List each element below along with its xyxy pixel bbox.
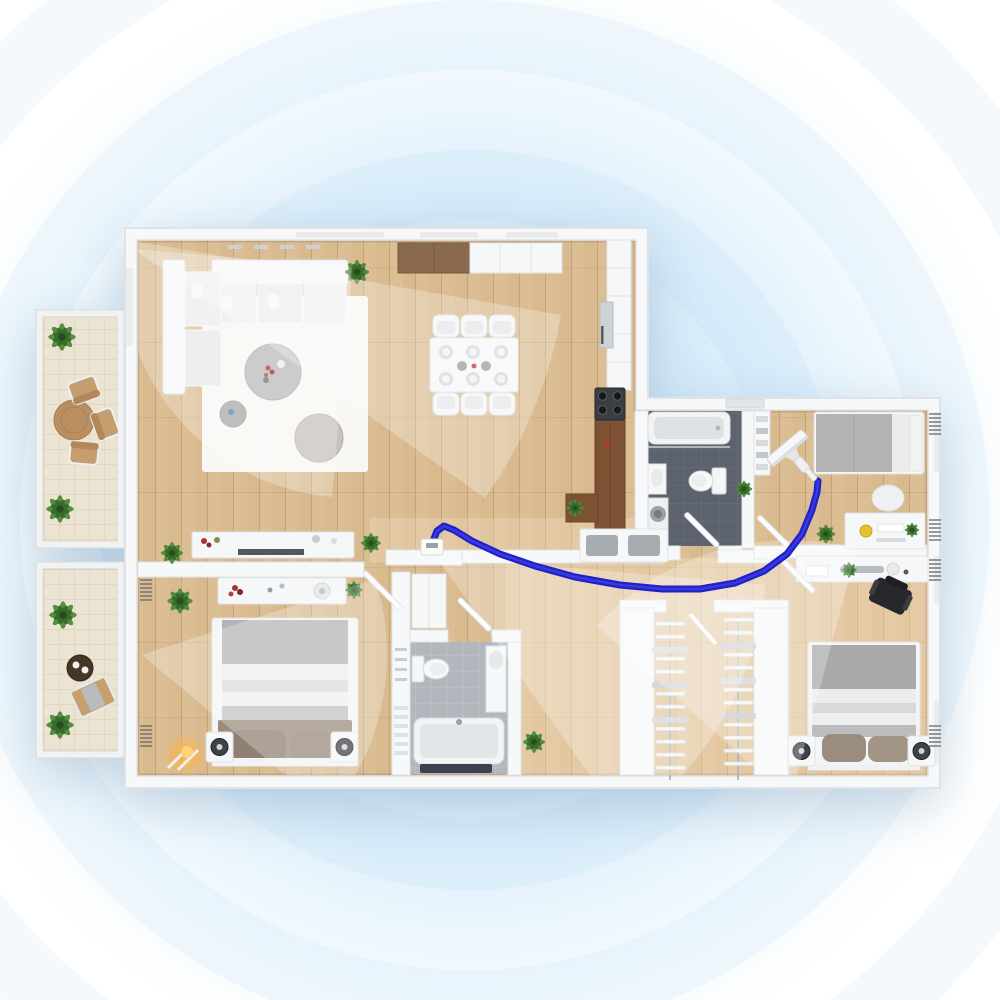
- bench-cushion: [586, 535, 618, 556]
- plant: [49, 601, 77, 629]
- tv-console: [192, 532, 354, 558]
- wall-corridor-left: [138, 562, 364, 577]
- plant: [48, 323, 76, 351]
- floor-lamp: [163, 733, 207, 777]
- charging-dock[interactable]: [421, 539, 443, 555]
- apartment-plan: [36, 228, 941, 826]
- window: [126, 268, 133, 346]
- balcony-top: [36, 310, 124, 548]
- plant: [566, 499, 584, 517]
- nightstand-speaker: [908, 736, 935, 766]
- toilet-tank: [712, 468, 726, 494]
- entry-door: [726, 399, 764, 408]
- patio-chair: [69, 441, 99, 465]
- plant: [523, 731, 545, 753]
- patio-table: [54, 400, 94, 440]
- upper-cabinet-white: [470, 243, 562, 273]
- bed-top-right: [814, 412, 924, 474]
- window: [934, 412, 939, 472]
- tray-table: [67, 655, 93, 681]
- nightstand-speaker: [206, 732, 233, 762]
- floor-plan: [0, 0, 1000, 1000]
- plant: [736, 481, 753, 498]
- balcony-bottom: [36, 562, 124, 758]
- soundbar: [238, 549, 304, 555]
- plant: [167, 588, 192, 613]
- desk-lamp: [860, 525, 872, 537]
- bench-cushion: [628, 535, 660, 556]
- desk-chair: [872, 485, 904, 511]
- toilet-tank: [412, 656, 424, 682]
- window: [296, 232, 384, 238]
- window: [506, 232, 558, 238]
- window: [420, 232, 478, 238]
- plant: [46, 495, 74, 523]
- desk-top-right: [845, 513, 925, 549]
- plant: [361, 533, 381, 553]
- plant: [905, 523, 919, 537]
- plant: [161, 542, 183, 564]
- wall-bath-right: [742, 411, 754, 548]
- bath-mat: [420, 764, 492, 773]
- red-utensil: [604, 441, 610, 447]
- plant: [46, 711, 74, 739]
- plant: [817, 525, 836, 544]
- wall-bath2-top-left: [410, 630, 448, 642]
